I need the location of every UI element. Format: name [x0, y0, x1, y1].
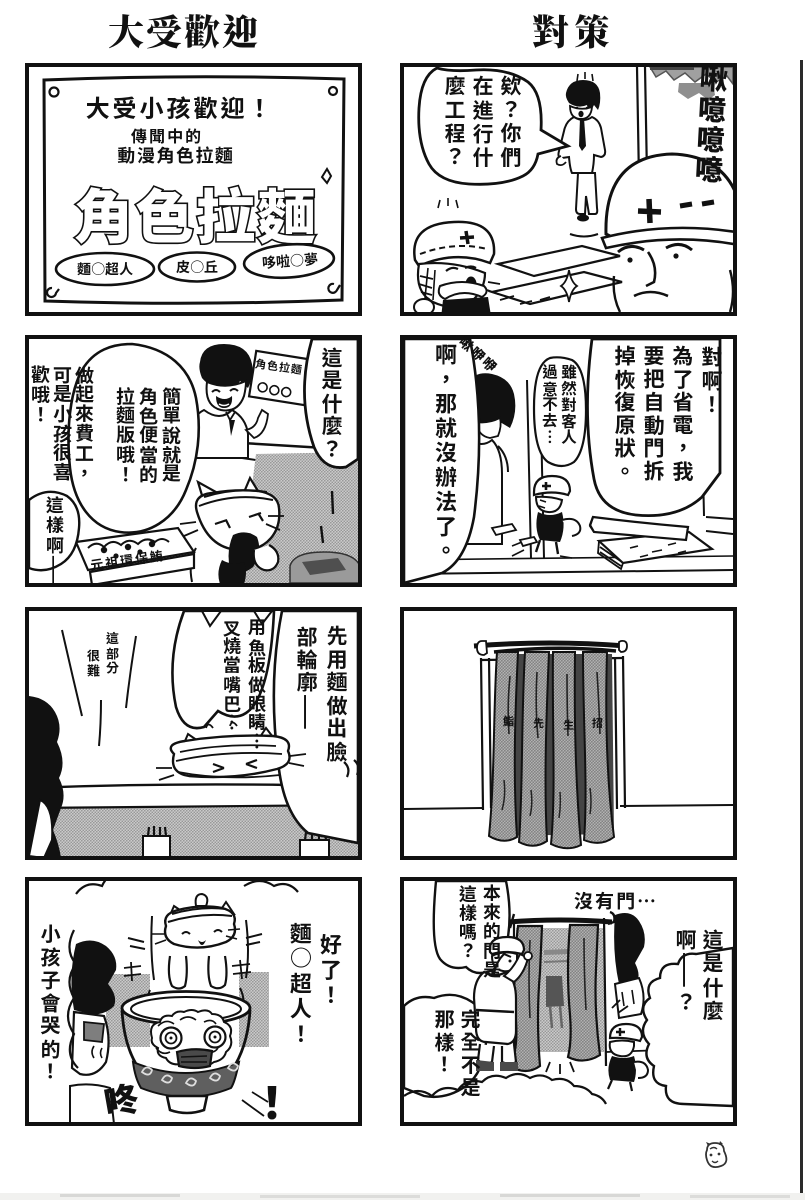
svg-text:角色拉麵: 角色拉麵 — [74, 170, 318, 255]
